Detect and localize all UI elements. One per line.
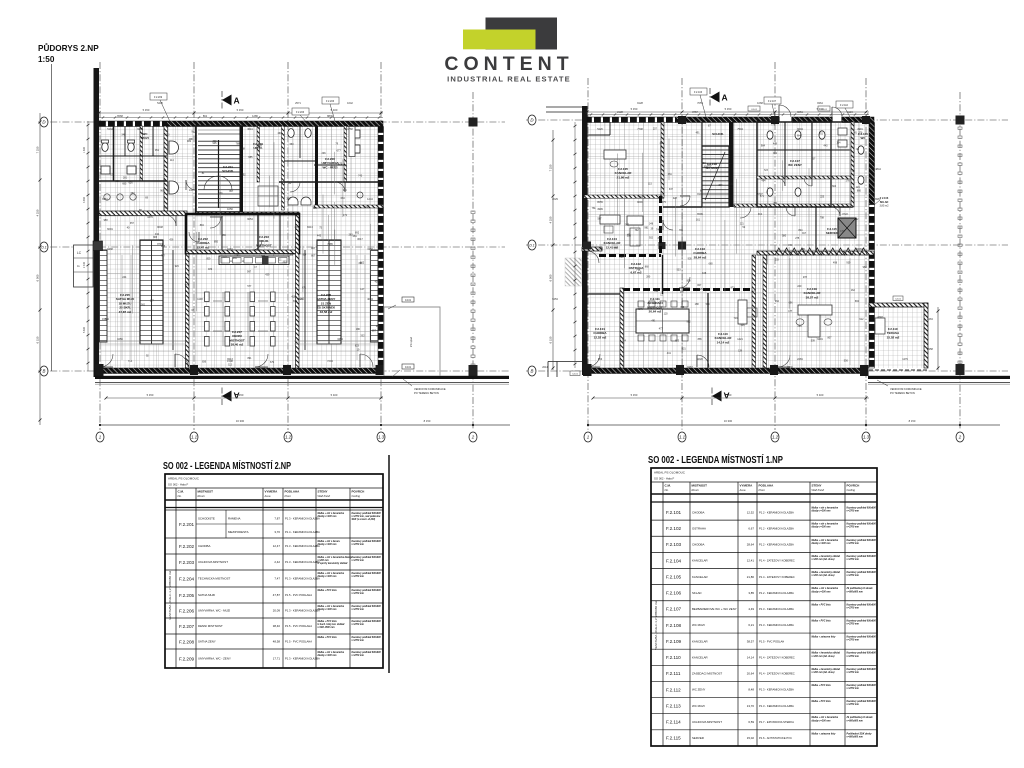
svg-text:173: 173 [338, 162, 343, 165]
svg-text:dlazby v=200 mm: dlazby v=200 mm [812, 543, 831, 545]
svg-text:v=2700 mm: v=2700 mm [352, 544, 364, 546]
svg-text:4079: 4079 [637, 308, 643, 311]
svg-text:6930: 6930 [787, 366, 793, 369]
svg-text:VESTAVBA „DUE-F-1,3" 2850/80: VESTAVBA „DUE-F-1,3" 2850/80 m2 [654, 601, 658, 650]
svg-text:144: 144 [189, 189, 194, 192]
svg-text:SO 002 - Hala F: SO 002 - Hala F [168, 483, 188, 487]
svg-text:RAMENA: RAMENA [228, 517, 240, 521]
svg-text:v=2700 mm: v=2700 mm [847, 607, 859, 609]
svg-text:Kazetovy podhled 600x600: Kazetovy podhled 600x600 [352, 636, 382, 639]
svg-text:902: 902 [687, 321, 692, 324]
svg-text:dlazby v=200 mm: dlazby v=200 mm [812, 591, 831, 593]
svg-text:A: A [722, 93, 728, 103]
svg-text:v=2700 mm, nad podestou: v=2700 mm, nad podestou [352, 515, 381, 518]
svg-text:807: 807 [311, 254, 316, 257]
svg-text:v=2700 mm: v=2700 mm [352, 609, 364, 611]
svg-text:12,41: 12,41 [747, 559, 755, 563]
svg-text:SATNA ZENY: SATNA ZENY [198, 640, 216, 644]
svg-text:660: 660 [131, 192, 136, 195]
svg-text:F.2.108: F.2.108 [666, 623, 682, 628]
svg-text:863: 863 [598, 357, 603, 361]
svg-text:972: 972 [625, 224, 630, 227]
svg-text:4,49: 4,49 [748, 607, 754, 611]
svg-text:v=600x600 mm: v=600x600 mm [847, 720, 863, 722]
svg-text:177: 177 [150, 300, 155, 303]
svg-text:SCHODISTE: SCHODISTE [198, 517, 215, 521]
svg-text:891: 891 [247, 357, 252, 360]
svg-text:P1.4 - ZATEZOVY KOBEREC: P1.4 - ZATEZOVY KOBEREC [759, 672, 795, 676]
svg-text:Kazetovy podhled 600x600: Kazetovy podhled 600x600 [847, 636, 877, 639]
svg-text:387: 387 [718, 184, 723, 187]
svg-text:4844: 4844 [875, 167, 881, 171]
svg-text:4150: 4150 [597, 248, 603, 251]
svg-text:1056: 1056 [117, 338, 123, 341]
svg-text:8 150: 8 150 [424, 419, 431, 423]
svg-text:Kazetovy podhled 600x600: Kazetovy podhled 600x600 [847, 507, 877, 510]
svg-text:9259: 9259 [137, 128, 143, 131]
svg-text:958: 958 [104, 219, 109, 222]
svg-text:dlazby v=200 mm: dlazby v=200 mm [318, 609, 337, 611]
svg-text:6181: 6181 [227, 248, 233, 251]
svg-text:827: 827 [697, 284, 702, 287]
svg-text:333: 333 [282, 261, 287, 264]
svg-text:v=2700 mm: v=2700 mm [847, 704, 859, 706]
svg-text:740: 740 [656, 228, 661, 231]
svg-text:12,52: 12,52 [747, 510, 755, 514]
svg-text:F.2.208: F.2.208 [179, 639, 195, 644]
svg-text:3158: 3158 [367, 248, 373, 251]
svg-text:A: A [234, 96, 240, 106]
svg-text:5 450: 5 450 [237, 108, 244, 112]
svg-text:865: 865 [698, 338, 703, 341]
svg-text:280: 280 [646, 275, 651, 278]
svg-text:1421: 1421 [737, 338, 743, 341]
svg-text:7 250: 7 250 [36, 146, 40, 153]
svg-text:P1.3 - KERAMICKA DLAZBA: P1.3 - KERAMICKA DLAZBA [759, 607, 794, 611]
svg-text:264: 264 [775, 300, 780, 303]
svg-text:F.2.111: F.2.111 [666, 671, 681, 676]
svg-text:5405: 5405 [157, 101, 163, 105]
svg-text:230: 230 [218, 192, 223, 195]
svg-text:3,85: 3,85 [748, 591, 754, 595]
svg-text:917: 917 [802, 232, 807, 235]
svg-text:660: 660 [290, 143, 295, 146]
svg-text:SERVER: SERVER [692, 736, 704, 740]
svg-text:28,64 m2: 28,64 m2 [694, 255, 707, 259]
svg-text:A: A [242, 259, 244, 263]
svg-text:F.2.101: F.2.101 [666, 510, 682, 515]
svg-text:443: 443 [317, 234, 322, 237]
svg-text:F.2.103: F.2.103 [666, 542, 682, 547]
svg-text:498: 498 [189, 138, 194, 141]
svg-text:F.2.113: F.2.113 [666, 703, 681, 708]
svg-text:Malba + PVC lista: Malba + PVC lista [318, 620, 338, 623]
svg-text:1676: 1676 [147, 216, 153, 219]
svg-text:221: 221 [740, 223, 745, 226]
svg-text:UMYVARNA, WC - ZENY: UMYVARNA, WC - ZENY [198, 657, 231, 661]
svg-text:281: 281 [353, 235, 358, 238]
svg-text:SDK (v urovni +6,230): SDK (v urovni +6,230) [352, 519, 376, 521]
svg-text:5 450: 5 450 [631, 107, 638, 111]
svg-text:5 450: 5 450 [725, 393, 732, 397]
svg-text:475: 475 [662, 201, 667, 204]
svg-text:921: 921 [343, 189, 348, 192]
svg-text:8 150: 8 150 [909, 419, 916, 423]
svg-text:C4.01: C4.01 [895, 299, 902, 301]
svg-text:225: 225 [820, 196, 825, 199]
svg-text:398: 398 [212, 140, 217, 143]
svg-text:dlazby v=200 mm: dlazby v=200 mm [318, 655, 337, 657]
svg-text:860: 860 [645, 265, 650, 268]
svg-text:Kazetovy podhled 600x600: Kazetovy podhled 600x600 [847, 700, 877, 703]
svg-text:677: 677 [337, 149, 342, 152]
svg-text:912: 912 [859, 318, 864, 321]
svg-text:F.2.204: F.2.204 [179, 576, 195, 581]
svg-text:D.1: D.1 [41, 246, 46, 250]
svg-text:CHODBA: CHODBA [692, 543, 704, 547]
svg-text:7708: 7708 [637, 128, 643, 131]
svg-text:Kazetovy podhled 600x600: Kazetovy podhled 600x600 [847, 619, 877, 622]
svg-text:171: 171 [343, 214, 348, 217]
svg-text:1.3: 1.3 [863, 435, 870, 440]
svg-text:361: 361 [668, 173, 673, 176]
svg-text:7,87: 7,87 [274, 517, 280, 521]
svg-text:283: 283 [289, 254, 294, 257]
svg-text:Kazetovy podhled 600x600: Kazetovy podhled 600x600 [352, 556, 382, 559]
svg-text:Malba + PVC lista: Malba + PVC lista [812, 700, 832, 703]
svg-text:dlazby v=200 mm: dlazby v=200 mm [318, 544, 337, 546]
svg-text:3,85 m2: 3,85 m2 [879, 205, 889, 208]
svg-text:5 450: 5 450 [147, 393, 154, 397]
svg-text:1244: 1244 [367, 197, 373, 201]
svg-text:v=200 mm (bd. dvou): v=200 mm (bd. dvou) [812, 575, 835, 577]
svg-text:8213: 8213 [227, 358, 233, 361]
svg-text:981: 981 [644, 226, 649, 229]
svg-text:1.1: 1.1 [679, 435, 686, 440]
svg-text:P1.2 - KERAMICKA DLAZBA: P1.2 - KERAMICKA DLAZBA [759, 526, 794, 530]
svg-text:825: 825 [675, 340, 680, 343]
svg-text:915: 915 [161, 245, 166, 248]
svg-text:F.2.104: F.2.104 [666, 558, 682, 563]
svg-text:788: 788 [236, 142, 241, 145]
svg-text:418: 418 [291, 296, 296, 299]
svg-text:Kazetovy podhled 600x600: Kazetovy podhled 600x600 [847, 539, 877, 542]
svg-text:161: 161 [696, 219, 701, 222]
svg-text:P1.2 - KERAMICKA DLAZBA: P1.2 - KERAMICKA DLAZBA [759, 543, 794, 547]
svg-text:2 400: 2 400 [83, 261, 86, 268]
svg-text:3617: 3617 [357, 237, 363, 241]
svg-text:118: 118 [311, 247, 315, 250]
svg-text:F 2.106: F 2.106 [880, 197, 889, 200]
svg-text:332: 332 [360, 335, 365, 338]
svg-text:KANCELAR: KANCELAR [692, 655, 708, 659]
svg-text:723: 723 [764, 169, 769, 172]
svg-text:1.1: 1.1 [191, 435, 198, 440]
svg-text:47,87: 47,87 [273, 593, 281, 597]
svg-text:KANCELAR: KANCELAR [692, 575, 708, 579]
svg-text:Kazetovy podhled 600x600: Kazetovy podhled 600x600 [847, 684, 877, 687]
svg-text:v=2700 mm: v=2700 mm [352, 624, 364, 626]
svg-text:569: 569 [706, 303, 711, 306]
svg-text:9648: 9648 [157, 225, 163, 229]
svg-text:168: 168 [702, 272, 707, 275]
svg-text:929: 929 [175, 265, 180, 268]
svg-text:Kazetovy podhled 600x600: Kazetovy podhled 600x600 [847, 571, 877, 574]
svg-text:MUZI: MUZI [141, 136, 148, 140]
svg-text:Area: Area [739, 488, 746, 492]
svg-text:P1.3 - KERAMICKA DLAZBA: P1.3 - KERAMICKA DLAZBA [285, 609, 320, 613]
svg-text:750: 750 [236, 254, 241, 257]
svg-text:533: 533 [677, 269, 682, 272]
svg-text:7085: 7085 [327, 243, 333, 246]
svg-text:278: 278 [803, 276, 808, 279]
svg-text:4991: 4991 [857, 128, 863, 131]
svg-text:1279: 1279 [902, 358, 908, 361]
svg-text:443: 443 [824, 144, 829, 147]
svg-text:498: 498 [833, 261, 838, 264]
svg-text:v=2700 mm: v=2700 mm [847, 640, 859, 642]
svg-text:F.2.206: F.2.206 [179, 608, 195, 613]
svg-text:5 450: 5 450 [237, 393, 244, 397]
svg-text:LC: LC [77, 251, 82, 255]
svg-text:Malba + PVC lista: Malba + PVC lista [812, 619, 832, 622]
svg-text:392: 392 [242, 173, 247, 176]
svg-text:6,67: 6,67 [748, 526, 754, 530]
svg-text:602: 602 [360, 262, 365, 265]
svg-text:469: 469 [294, 226, 299, 229]
svg-text:v=600x600 mm: v=600x600 mm [847, 591, 863, 593]
svg-text:2281: 2281 [797, 357, 803, 361]
svg-text:B: B [531, 369, 534, 374]
svg-text:348: 348 [121, 133, 126, 136]
svg-text:448: 448 [773, 142, 778, 145]
svg-text:580: 580 [782, 234, 787, 237]
svg-text:20,64: 20,64 [747, 672, 755, 676]
svg-text:MISTNOST: MISTNOST [256, 243, 272, 247]
svg-text:UKLIDOVA MISTNOST: UKLIDOVA MISTNOST [692, 720, 722, 724]
svg-text:Kazetovy podhled 600x600: Kazetovy podhled 600x600 [847, 603, 877, 606]
svg-text:6091: 6091 [107, 227, 113, 231]
svg-text:P1.4 - ZATEZOVY KOBEREC: P1.4 - ZATEZOVY KOBEREC [759, 559, 795, 563]
svg-text:21,86 m2: 21,86 m2 [617, 175, 630, 179]
svg-text:Floor: Floor [285, 494, 292, 498]
svg-text:310: 310 [313, 207, 318, 210]
svg-text:Malba + keramicky obklad: Malba + keramicky obklad [812, 653, 841, 655]
svg-text:PO TERENU BETON: PO TERENU BETON [890, 391, 915, 395]
svg-text:984: 984 [797, 135, 802, 138]
svg-text:4999: 4999 [597, 208, 603, 211]
svg-text:Kazetovy podhled 600x600: Kazetovy podhled 600x600 [847, 523, 877, 526]
svg-text:v=600x600 mm: v=600x600 mm [847, 736, 863, 738]
svg-text:9555: 9555 [597, 200, 603, 204]
svg-text:SATNA MUZI: SATNA MUZI [198, 593, 215, 597]
svg-text:Room: Room [692, 488, 700, 492]
svg-text:5 400: 5 400 [817, 393, 824, 397]
svg-text:115: 115 [648, 182, 652, 185]
svg-text:164: 164 [836, 141, 841, 144]
svg-text:859: 859 [206, 257, 211, 260]
svg-text:47,87 m2: 47,87 m2 [119, 310, 132, 314]
svg-text:2% spad: 2% spad [409, 336, 413, 347]
svg-text:477: 477 [659, 327, 664, 330]
svg-text:P1.5 - PVC PODLAHA: P1.5 - PVC PODLAHA [285, 624, 312, 628]
svg-text:No.: No. [178, 494, 183, 498]
svg-text:SO 002 - LEGENDA MÍSTNOSTÍ 2.: SO 002 - LEGENDA MÍSTNOSTÍ 2.NP [163, 459, 291, 472]
svg-text:v=2700 mm: v=2700 mm [352, 576, 364, 578]
svg-text:742: 742 [854, 218, 859, 221]
svg-text:6,21: 6,21 [748, 623, 754, 627]
svg-text:775: 775 [261, 255, 266, 258]
svg-text:491: 491 [696, 131, 701, 134]
svg-text:BEZBARIEROVE WC + WC ZENY: BEZBARIEROVE WC + WC ZENY [692, 607, 737, 611]
svg-text:623: 623 [355, 345, 360, 348]
svg-text:7 250: 7 250 [549, 164, 553, 171]
svg-text:PŮDORYS 2.NP: PŮDORYS 2.NP [38, 42, 99, 53]
svg-text:P1.4 - KERAMICKA DLAZBA: P1.4 - KERAMICKA DLAZBA [285, 530, 320, 534]
svg-text:F 2.110: F 2.110 [840, 104, 849, 107]
svg-text:263: 263 [349, 233, 354, 236]
svg-text:798: 798 [820, 216, 825, 219]
svg-text:781: 781 [592, 207, 597, 210]
svg-text:281: 281 [123, 177, 128, 180]
svg-text:Malba + otir z keramicke: Malba + otir z keramicke [812, 716, 839, 719]
svg-text:426: 426 [169, 239, 174, 242]
svg-text:812: 812 [293, 300, 298, 303]
svg-text:5 450: 5 450 [143, 108, 150, 112]
svg-text:WC MUZI: WC MUZI [692, 704, 705, 708]
svg-text:15,02 m2: 15,02 m2 [887, 335, 900, 339]
svg-text:28,64: 28,64 [747, 543, 755, 547]
svg-text:v=2700 mm: v=2700 mm [352, 593, 364, 595]
svg-text:348: 348 [649, 222, 654, 225]
svg-text:684: 684 [855, 300, 860, 303]
svg-text:Malba + zatezove listy: Malba + zatezove listy [812, 636, 837, 639]
svg-text:873: 873 [731, 286, 736, 289]
svg-text:695: 695 [122, 183, 127, 186]
svg-text:Kazetovy podhled 600x600: Kazetovy podhled 600x600 [352, 512, 382, 515]
svg-text:836: 836 [202, 361, 207, 364]
svg-text:P1.2 - KERAMICKA DLAZBA: P1.2 - KERAMICKA DLAZBA [759, 591, 794, 595]
svg-text:Malba + otir z keramicke: Malba + otir z keramicke [318, 512, 345, 515]
svg-text:CONTENT: CONTENT [444, 53, 573, 75]
svg-text:Malba + keramicky obklad: Malba + keramicky obklad [812, 572, 841, 574]
svg-text:13,70: 13,70 [747, 704, 755, 708]
svg-text:F.2.205: F.2.205 [179, 593, 195, 598]
svg-text:679: 679 [270, 361, 275, 364]
svg-text:9364: 9364 [817, 101, 823, 105]
svg-text:Malba + otir z keramicke: Malba + otir z keramicke [812, 587, 839, 590]
svg-text:333: 333 [166, 134, 171, 137]
svg-text:6 150: 6 150 [549, 336, 553, 343]
svg-text:2571: 2571 [295, 101, 301, 105]
svg-text:D.1: D.1 [529, 244, 534, 248]
svg-text:612: 612 [164, 206, 169, 209]
svg-text:4797: 4797 [877, 316, 883, 319]
svg-text:121: 121 [856, 186, 861, 189]
svg-text:7204: 7204 [327, 359, 333, 363]
svg-text:288: 288 [620, 256, 625, 259]
svg-text:SERVER: SERVER [826, 231, 839, 235]
svg-text:5226: 5226 [597, 128, 603, 131]
svg-text:Ceiling: Ceiling [847, 488, 856, 492]
svg-text:v=200 mm (bd. dvou): v=200 mm (bd. dvou) [812, 656, 835, 658]
svg-text:14,14 m2: 14,14 m2 [717, 340, 730, 344]
svg-text:F.2.202: F.2.202 [179, 544, 195, 549]
svg-text:939: 939 [846, 261, 851, 264]
svg-text:8413: 8413 [307, 225, 313, 229]
svg-text:132: 132 [287, 182, 292, 185]
svg-text:B: B [43, 369, 46, 374]
svg-text:961: 961 [191, 131, 196, 134]
svg-text:743: 743 [358, 175, 363, 178]
svg-text:8,48: 8,48 [748, 688, 754, 692]
svg-text:6 150: 6 150 [36, 336, 40, 343]
svg-text:488: 488 [702, 162, 707, 165]
svg-text:P1.4 - ZATEZOVY KOBEREC: P1.4 - ZATEZOVY KOBEREC [759, 655, 795, 659]
svg-text:240: 240 [797, 285, 802, 288]
svg-text:714: 714 [128, 359, 133, 363]
svg-text:990: 990 [707, 165, 712, 168]
svg-text:F 2.107: F 2.107 [768, 100, 777, 103]
svg-text:Kazetovy podhled 600x600: Kazetovy podhled 600x600 [352, 651, 382, 654]
svg-text:577: 577 [247, 285, 252, 288]
svg-text:U kuch. linky ker. obklad: U kuch. linky ker. obklad [318, 624, 345, 626]
svg-text:F.2.203: F.2.203 [179, 560, 195, 565]
svg-text:CHODBA: CHODBA [692, 510, 704, 514]
svg-text:362: 362 [207, 211, 212, 214]
svg-text:38,57 m2: 38,57 m2 [806, 295, 819, 299]
svg-text:P1.5 - PVC PODLAHA: P1.5 - PVC PODLAHA [285, 640, 312, 644]
svg-text:293: 293 [797, 325, 802, 328]
svg-text:561: 561 [141, 303, 146, 306]
svg-text:Wall finish: Wall finish [318, 494, 331, 498]
svg-text:675: 675 [110, 173, 115, 176]
svg-text:905: 905 [688, 257, 693, 260]
svg-text:C4.01: C4.01 [572, 374, 579, 376]
svg-text:20,09: 20,09 [273, 609, 281, 613]
svg-text:WC: WC [861, 136, 867, 140]
svg-text:12,47: 12,47 [273, 544, 281, 548]
svg-text:1768: 1768 [347, 128, 353, 131]
svg-text:F.2.201: F.2.201 [179, 522, 195, 527]
svg-text:U sprchy keramicky obklad: U sprchy keramicky obklad [318, 563, 348, 565]
svg-text:3722: 3722 [842, 212, 848, 216]
svg-text:128: 128 [738, 349, 743, 352]
svg-text:P1.2 - KERAMICKA DLAZBA: P1.2 - KERAMICKA DLAZBA [759, 510, 794, 514]
svg-text:8191: 8191 [697, 193, 703, 196]
svg-text:5 800: 5 800 [83, 326, 86, 333]
svg-text:5 450: 5 450 [725, 107, 732, 111]
svg-text:38,40: 38,40 [273, 624, 281, 628]
svg-text:351: 351 [819, 133, 824, 136]
svg-text:F.2.106: F.2.106 [666, 591, 682, 596]
svg-text:759: 759 [258, 145, 263, 148]
svg-text:Malba + zatezove listy: Malba + zatezove listy [812, 732, 837, 735]
svg-text:v=2700 mm: v=2700 mm [352, 655, 364, 657]
svg-text:v=200 mm (bd. dvou): v=200 mm (bd. dvou) [812, 672, 835, 674]
svg-text:931: 931 [773, 152, 778, 155]
svg-text:844: 844 [798, 229, 803, 232]
svg-text:v=2700 mm: v=2700 mm [847, 543, 859, 545]
svg-text:20,64 m2: 20,64 m2 [649, 310, 662, 314]
svg-text:887: 887 [751, 290, 756, 293]
svg-text:F.2.109: F.2.109 [666, 639, 682, 644]
svg-text:206: 206 [322, 152, 327, 155]
svg-text:127: 127 [360, 288, 365, 291]
svg-text:957: 957 [229, 190, 234, 193]
svg-text:Malba + otir z keramicke: Malba + otir z keramicke [318, 605, 345, 608]
svg-text:P1.5 - PVC PODLAHA: P1.5 - PVC PODLAHA [285, 593, 312, 597]
